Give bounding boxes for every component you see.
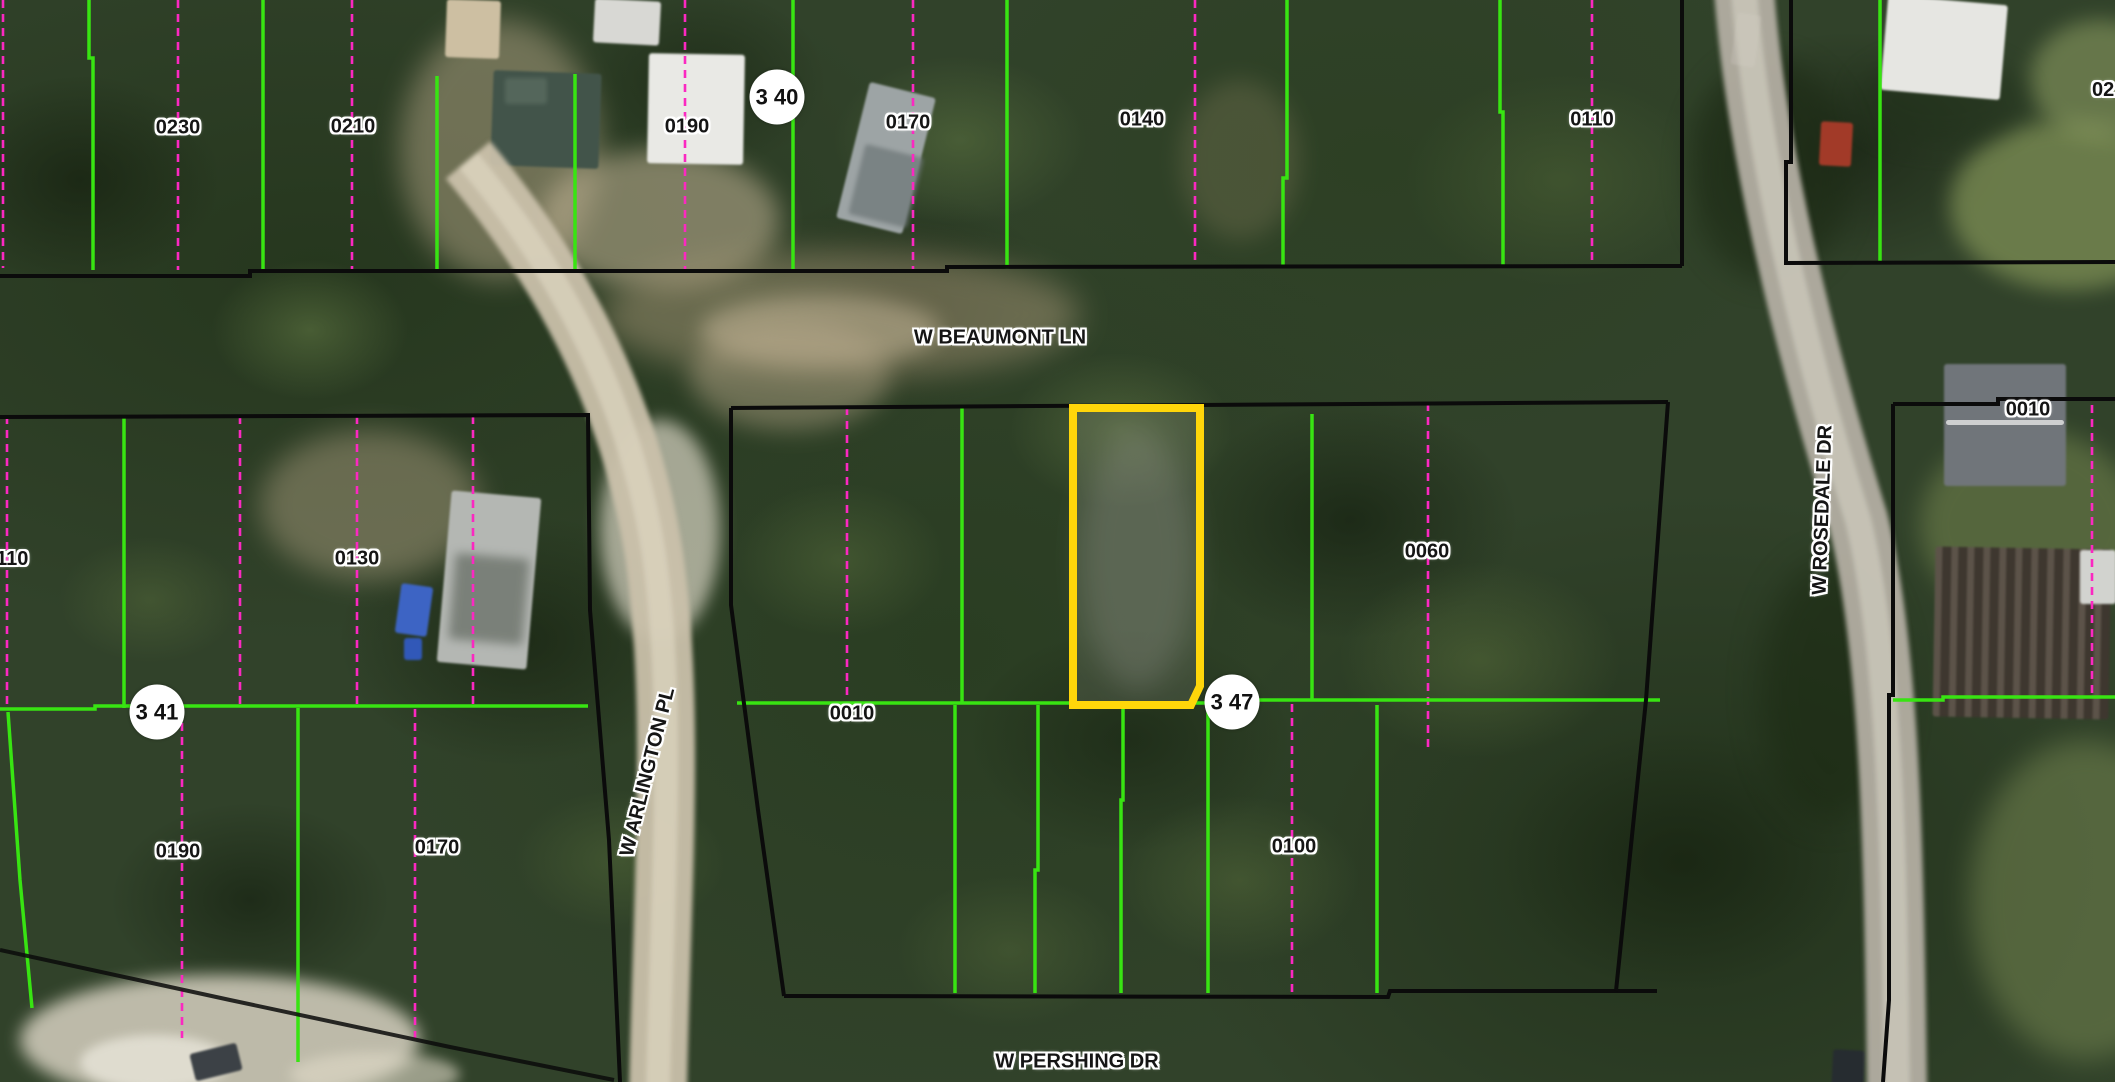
parcel-line: [0, 706, 588, 709]
block-boundary: [1893, 399, 2115, 404]
parcel-line: [1121, 705, 1123, 993]
parcel-label: 0230: [156, 117, 201, 140]
parcel-label: 0140: [1120, 109, 1165, 132]
parcel-label: 0010: [2006, 399, 2051, 422]
parcel-label: 0190: [665, 116, 710, 139]
parcel-map-canvas[interactable]: 0230 0210 0190 0170 0140 0110 02 0110 01…: [0, 0, 2115, 1082]
parcel-lines-green: [0, 0, 2115, 1062]
parcel-label: 0130: [335, 548, 380, 571]
parcel-label: 0060: [1405, 541, 1450, 564]
block-badge-341: 3 41: [130, 685, 185, 740]
parcel-label: 0170: [886, 112, 931, 135]
parcel-label: 0110: [1570, 109, 1613, 132]
parcel-label: 0170: [415, 837, 460, 860]
street-label-beaumont: W BEAUMONT LN: [914, 327, 1086, 350]
parcel-line: [737, 700, 1660, 703]
parcel-line: [1500, 0, 1503, 266]
parcel-line: [1893, 697, 2115, 700]
block-boundary: [0, 415, 620, 1082]
block-boundary: [0, 266, 1682, 276]
block-badge-340: 3 40: [750, 70, 805, 125]
parcel-line: [1035, 705, 1038, 993]
parcel-label-clipped: 0110: [0, 548, 28, 571]
parcel-label: 0210: [331, 116, 376, 139]
parcel-line: [1283, 0, 1287, 268]
parcel-label-clipped: 02: [2092, 79, 2114, 102]
street-label-pershing: W PERSHING DR: [995, 1051, 1158, 1074]
gis-overlay: [0, 0, 2115, 1082]
block-badge-347: 3 47: [1205, 675, 1260, 730]
parcel-label: 0190: [156, 841, 201, 864]
block-boundaries: [0, 0, 2115, 1082]
block-boundary: [1616, 402, 1668, 991]
parcel-line: [8, 712, 32, 1008]
parcel-label: 0010: [830, 703, 875, 726]
highlighted-parcel[interactable]: [1073, 408, 1200, 705]
block-boundary: [1786, 0, 2115, 263]
block-boundary: [784, 991, 1657, 997]
block-boundary: [0, 950, 614, 1080]
parcel-line: [89, 0, 93, 270]
parcel-label: 0100: [1272, 836, 1317, 859]
